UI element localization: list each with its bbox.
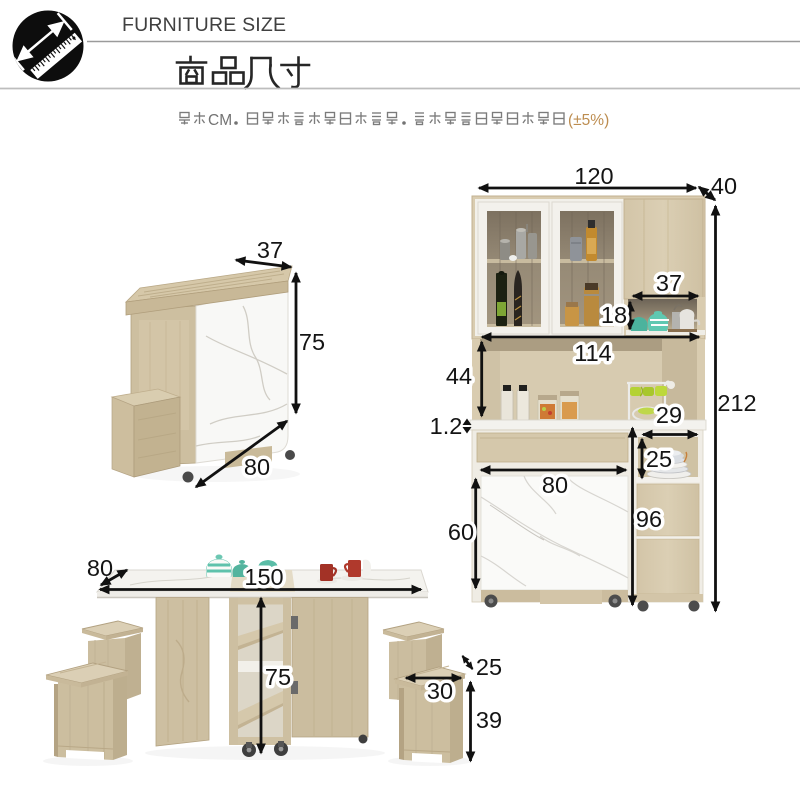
svg-text:CM: CM	[208, 112, 232, 129]
svg-text:60: 60	[448, 519, 474, 545]
svg-text:75: 75	[265, 664, 291, 690]
svg-text:25: 25	[646, 446, 672, 472]
svg-text:18: 18	[601, 302, 627, 328]
svg-text:212: 212	[717, 390, 756, 416]
svg-text:75: 75	[299, 329, 325, 355]
svg-text:40: 40	[711, 173, 737, 199]
svg-text:120: 120	[574, 163, 613, 189]
svg-text:37: 37	[257, 237, 283, 263]
svg-text:80: 80	[542, 472, 568, 498]
svg-text:1.2: 1.2	[430, 413, 463, 439]
svg-text:FURNITURE SIZE: FURNITURE SIZE	[122, 14, 286, 36]
svg-text:29: 29	[656, 402, 682, 428]
svg-text:96: 96	[636, 506, 662, 532]
svg-text:39: 39	[476, 707, 502, 733]
svg-text:80: 80	[244, 454, 270, 480]
svg-text:37: 37	[656, 270, 682, 296]
svg-text:30: 30	[427, 678, 453, 704]
svg-text:44: 44	[446, 363, 472, 389]
svg-text:80: 80	[87, 555, 113, 581]
svg-text:25: 25	[476, 654, 502, 680]
svg-text:114: 114	[574, 340, 611, 366]
svg-text:150: 150	[244, 564, 283, 590]
svg-text:(±5%): (±5%)	[568, 112, 609, 129]
